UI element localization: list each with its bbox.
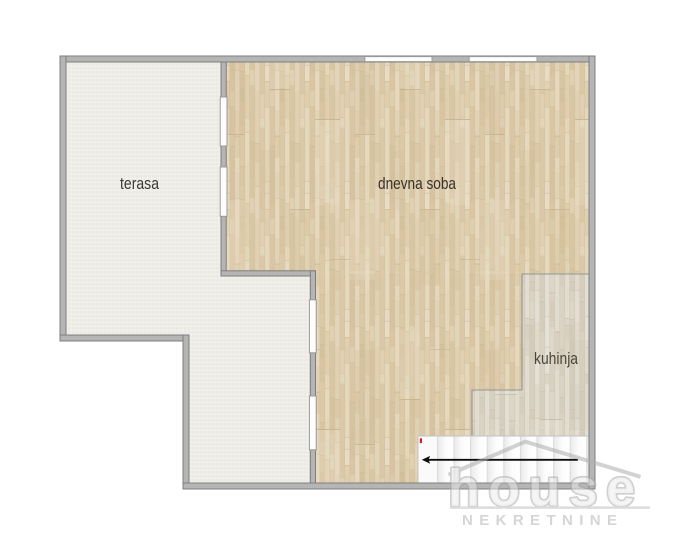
svg-text:dnevna soba: dnevna soba: [378, 174, 456, 193]
svg-text:NEKRETNINE: NEKRETNINE: [462, 512, 617, 529]
svg-text:kuhinja: kuhinja: [534, 349, 578, 368]
svg-text:terasa: terasa: [120, 174, 159, 193]
